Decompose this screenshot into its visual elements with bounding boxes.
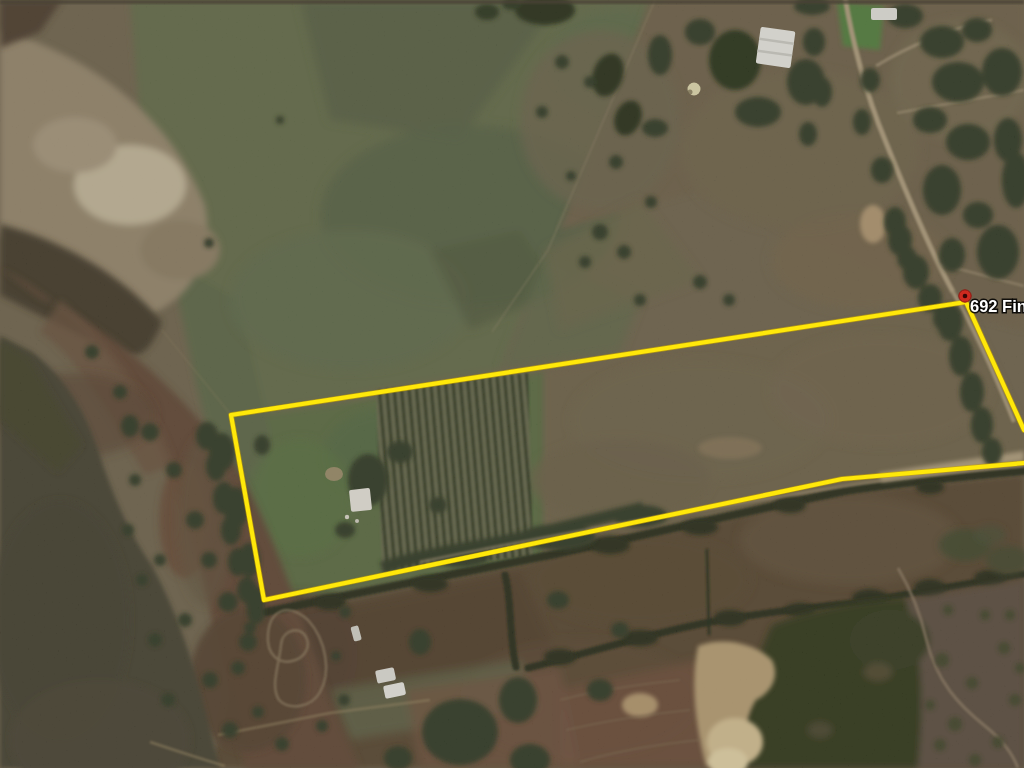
svg-text:692 Fin: 692 Fin bbox=[970, 297, 1024, 315]
